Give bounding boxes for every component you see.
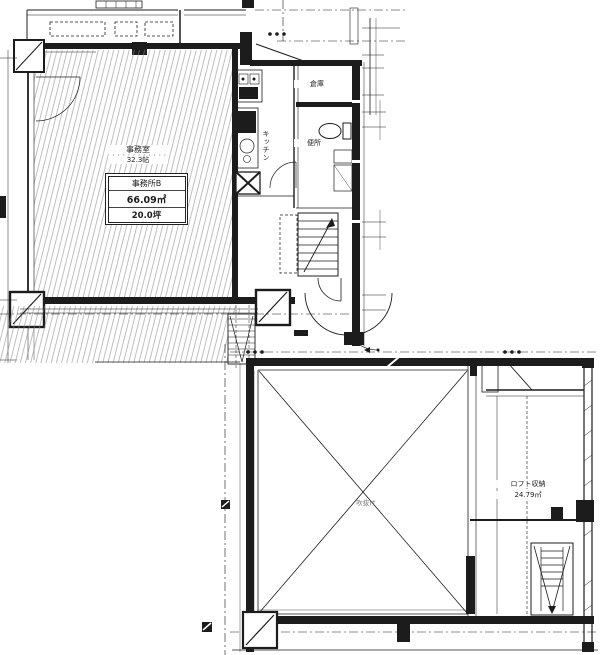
unit-name-label: 事務所B [109, 177, 185, 191]
column-icon [256, 290, 290, 325]
grid-dots-icon [268, 32, 272, 36]
floor-plan-page: 事務室 32.3帖 事務所B 66.09㎡ 20.0坪 倉庫 キッチン 便所 吹… [0, 0, 600, 655]
lower-plan [202, 344, 598, 655]
lower-bottom [202, 500, 410, 648]
level-mark-icon [202, 622, 212, 632]
column-icon [243, 612, 277, 648]
column-icon [482, 362, 498, 392]
grid-dots-icon [246, 350, 250, 354]
toilet-icon [319, 123, 351, 139]
kitchen-room [236, 66, 298, 208]
sink-icon [240, 139, 254, 153]
unit-info-box: 事務所B 66.09㎡ 20.0坪 [105, 173, 188, 225]
washbasin-icon [334, 150, 352, 163]
loft-storage-room [470, 362, 594, 615]
upper-right-wall [352, 62, 386, 346]
unit-info-inner: 事務所B 66.09㎡ 20.0坪 [108, 176, 186, 223]
duct-shaft-icon [236, 172, 260, 194]
level-mark-icon [221, 500, 230, 509]
upper-plan [0, 0, 408, 368]
dimension-lines-top [255, 0, 408, 115]
column-icon [14, 40, 44, 72]
staircase-icon [280, 213, 341, 301]
unit-area-tsubo-label: 20.0坪 [109, 208, 185, 222]
door-swing-icon [270, 162, 296, 188]
door-swing-icon [318, 278, 341, 301]
equipment-outline-icon [145, 22, 173, 36]
entrance-doors [294, 293, 392, 353]
balcony [27, 1, 358, 46]
equipment-outline-icon [115, 22, 137, 36]
storage-toilet-rooms [270, 102, 356, 208]
floor-plan-drawing [0, 0, 600, 655]
stove-icon [238, 111, 256, 133]
loft-ladder-icon [531, 543, 573, 615]
void-room [254, 362, 468, 616]
stair-arrow-icon [326, 218, 335, 228]
unit-area-sqm-label: 66.09㎡ [109, 191, 185, 208]
office-bottom-wall [25, 297, 295, 304]
grid-dots-icon [503, 350, 507, 354]
lower-outer-walls [232, 357, 598, 652]
mini-stair-icon [228, 314, 255, 364]
equipment-outline-icon [50, 22, 105, 36]
hatch-region [0, 306, 240, 363]
